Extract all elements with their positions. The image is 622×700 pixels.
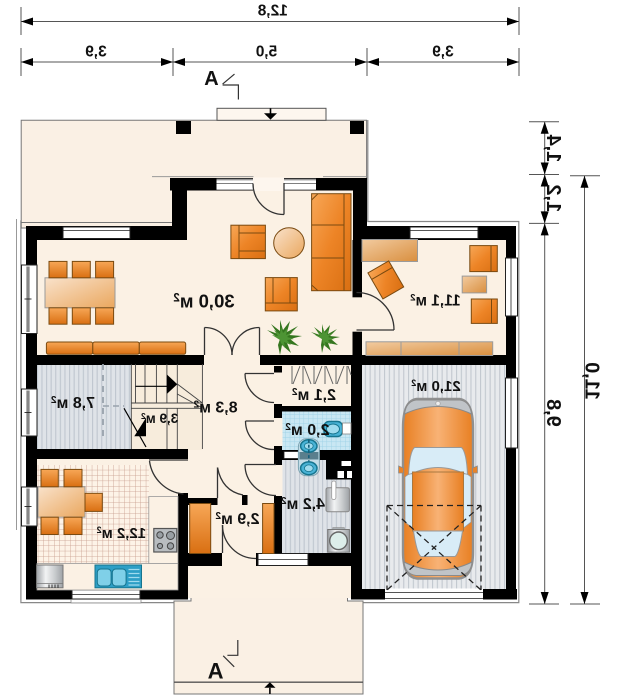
svg-text:5,0: 5,0	[256, 44, 278, 61]
svg-text:11,1 м2: 11,1 м2	[410, 293, 460, 310]
svg-text:A: A	[208, 658, 224, 683]
svg-text:12,8: 12,8	[257, 2, 288, 19]
svg-text:7,8 м2: 7,8 м2	[51, 395, 96, 412]
svg-text:11,0: 11,0	[581, 362, 603, 400]
svg-text:12,2 м2: 12,2 м2	[97, 525, 146, 542]
svg-text:2,1 м2: 2,1 м2	[292, 387, 337, 404]
svg-text:4,2 м2: 4,2 м2	[281, 496, 326, 513]
svg-text:3,9 м2: 3,9 м2	[141, 411, 179, 426]
svg-text:2,0 м2: 2,0 м2	[285, 422, 330, 439]
svg-text:3,9: 3,9	[432, 44, 454, 61]
svg-text:21,0 м2: 21,0 м2	[411, 378, 460, 395]
svg-text:9,8: 9,8	[542, 399, 564, 427]
svg-text:1,2: 1,2	[542, 184, 564, 212]
svg-text:8,3 м2: 8,3 м2	[193, 400, 238, 417]
svg-text:30,0 м2: 30,0 м2	[173, 291, 234, 312]
svg-text:2,9 м2: 2,9 м2	[215, 511, 260, 528]
svg-text:1,4: 1,4	[542, 134, 564, 163]
svg-text:A: A	[204, 68, 218, 90]
svg-text:3,9: 3,9	[85, 44, 107, 61]
